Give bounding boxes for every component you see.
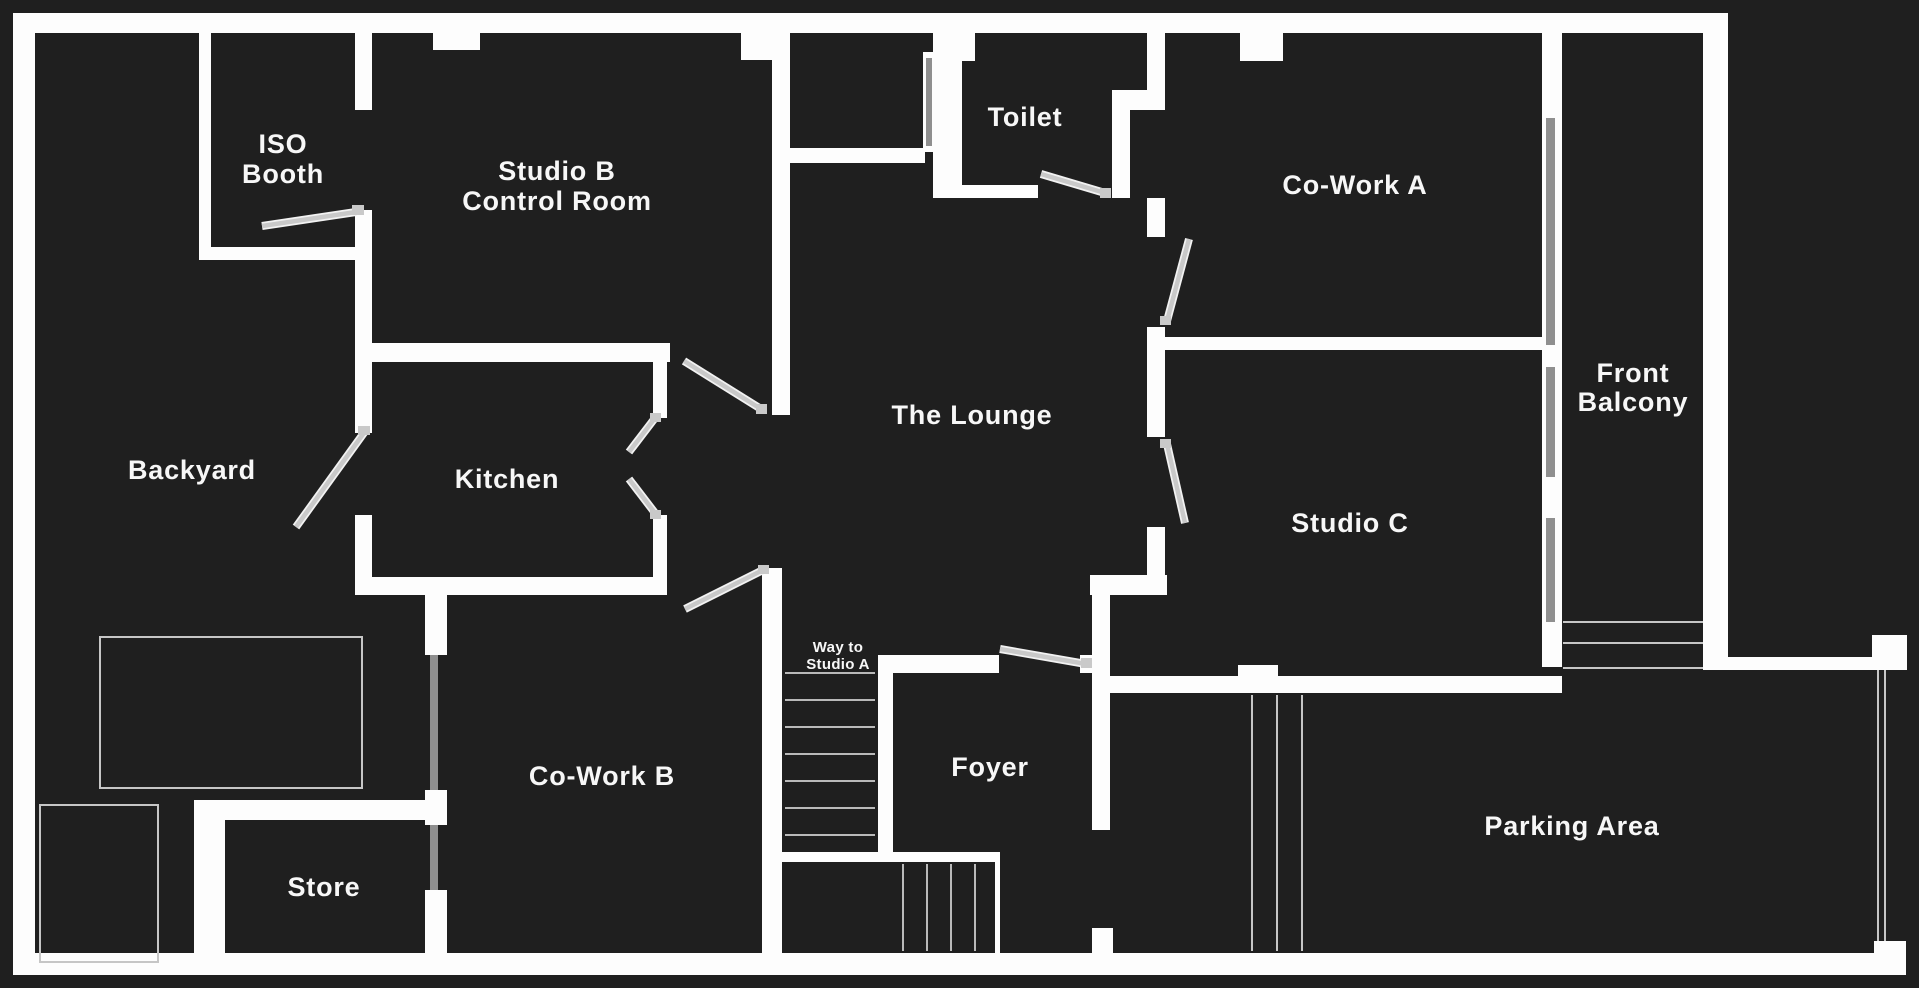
wall-parking-top-band — [1703, 657, 1878, 670]
label-studio-b-line1: Studio B — [498, 156, 615, 186]
wall-store-left — [194, 800, 225, 953]
window-co-work-b-west-upper — [430, 655, 438, 790]
label-kitchen: Kitchen — [455, 464, 560, 494]
label-way-to-studio-a-line2: Studio A — [806, 656, 870, 673]
wall-outer-right — [1703, 33, 1728, 670]
window-co-work-b-west-lower — [430, 825, 438, 890]
floor-plan-page: ISO Booth Studio B Control Room Toilet C… — [0, 0, 1919, 988]
label-co-work-a: Co-Work A — [1282, 170, 1427, 200]
label-front-balcony-line2: Balcony — [1578, 387, 1689, 417]
label-toilet: Toilet — [988, 102, 1063, 132]
wall-studio-b-right — [772, 33, 790, 415]
wall-lounge-e1 — [1147, 198, 1165, 237]
wall-foyer-top — [878, 655, 999, 673]
label-co-work-b: Co-Work B — [529, 761, 675, 791]
wall-toilet-left — [933, 33, 962, 185]
column-studio-b — [433, 33, 480, 50]
window-studio-c-east-upper — [1546, 367, 1555, 477]
wall-co-work-b-west-c — [425, 890, 447, 953]
label-studio-b-line2: Control Room — [462, 186, 652, 216]
label-foyer: Foyer — [951, 752, 1029, 782]
wall-foyer-right-stub — [1092, 928, 1113, 956]
wall-outer-left — [13, 33, 35, 959]
wall-kitchen-right-b — [653, 515, 667, 577]
label-studio-c: Studio C — [1291, 508, 1408, 538]
wall-v355-b — [355, 210, 372, 433]
window-closet-toilet — [926, 58, 932, 146]
wall-stairs-landing — [782, 852, 1000, 862]
wall-store-top — [194, 800, 430, 820]
label-iso-booth-line2: Booth — [242, 159, 324, 189]
wall-closet-bottom — [790, 148, 925, 163]
wall-outer-bottom — [13, 953, 1906, 975]
column-co-work-a — [1240, 33, 1283, 61]
wall-foyer-right — [1092, 575, 1110, 830]
wall-lounge-e2 — [1147, 327, 1165, 437]
label-parking-area: Parking Area — [1484, 811, 1659, 841]
label-store: Store — [287, 872, 360, 902]
wall-co-work-a-left — [1147, 33, 1165, 110]
wall-co-work-b-west-b — [425, 790, 447, 825]
wall-co-work-b-west-a — [425, 595, 447, 655]
label-backyard: Backyard — [128, 455, 256, 485]
wall-studio-c-bottom — [1107, 676, 1562, 693]
wall-iso-left — [199, 33, 211, 260]
wall-kitchen-bottom — [368, 577, 667, 595]
window-co-work-a-east — [1546, 118, 1555, 345]
window-studio-c-east-lower — [1546, 518, 1555, 622]
wall-stairs-left — [762, 568, 782, 953]
wall-toilet-bottom — [933, 185, 1038, 198]
wall-co-work-a-bottom — [1165, 337, 1562, 350]
wall-kitchen-top — [355, 343, 670, 362]
wall-stairs-right-edge — [995, 862, 1000, 953]
gate-post-top — [1872, 635, 1907, 670]
label-iso-booth-line1: ISO — [259, 129, 308, 159]
wall-kitchen-right-a — [653, 362, 667, 418]
label-way-to-studio-a-line1: Way to — [813, 639, 863, 656]
floor-plan-svg: ISO Booth Studio B Control Room Toilet C… — [0, 0, 1919, 988]
wall-studio-c-bottom-block — [1238, 665, 1278, 680]
wall-foyer-left — [878, 655, 893, 852]
wall-v355-a — [355, 33, 372, 110]
label-front-balcony-line1: Front — [1597, 358, 1670, 388]
wall-iso-bottom — [199, 247, 372, 260]
wall-outer-top — [13, 13, 1728, 33]
column-toilet — [962, 33, 975, 61]
label-the-lounge: The Lounge — [892, 400, 1053, 430]
gate-post-bottom — [1874, 941, 1906, 975]
